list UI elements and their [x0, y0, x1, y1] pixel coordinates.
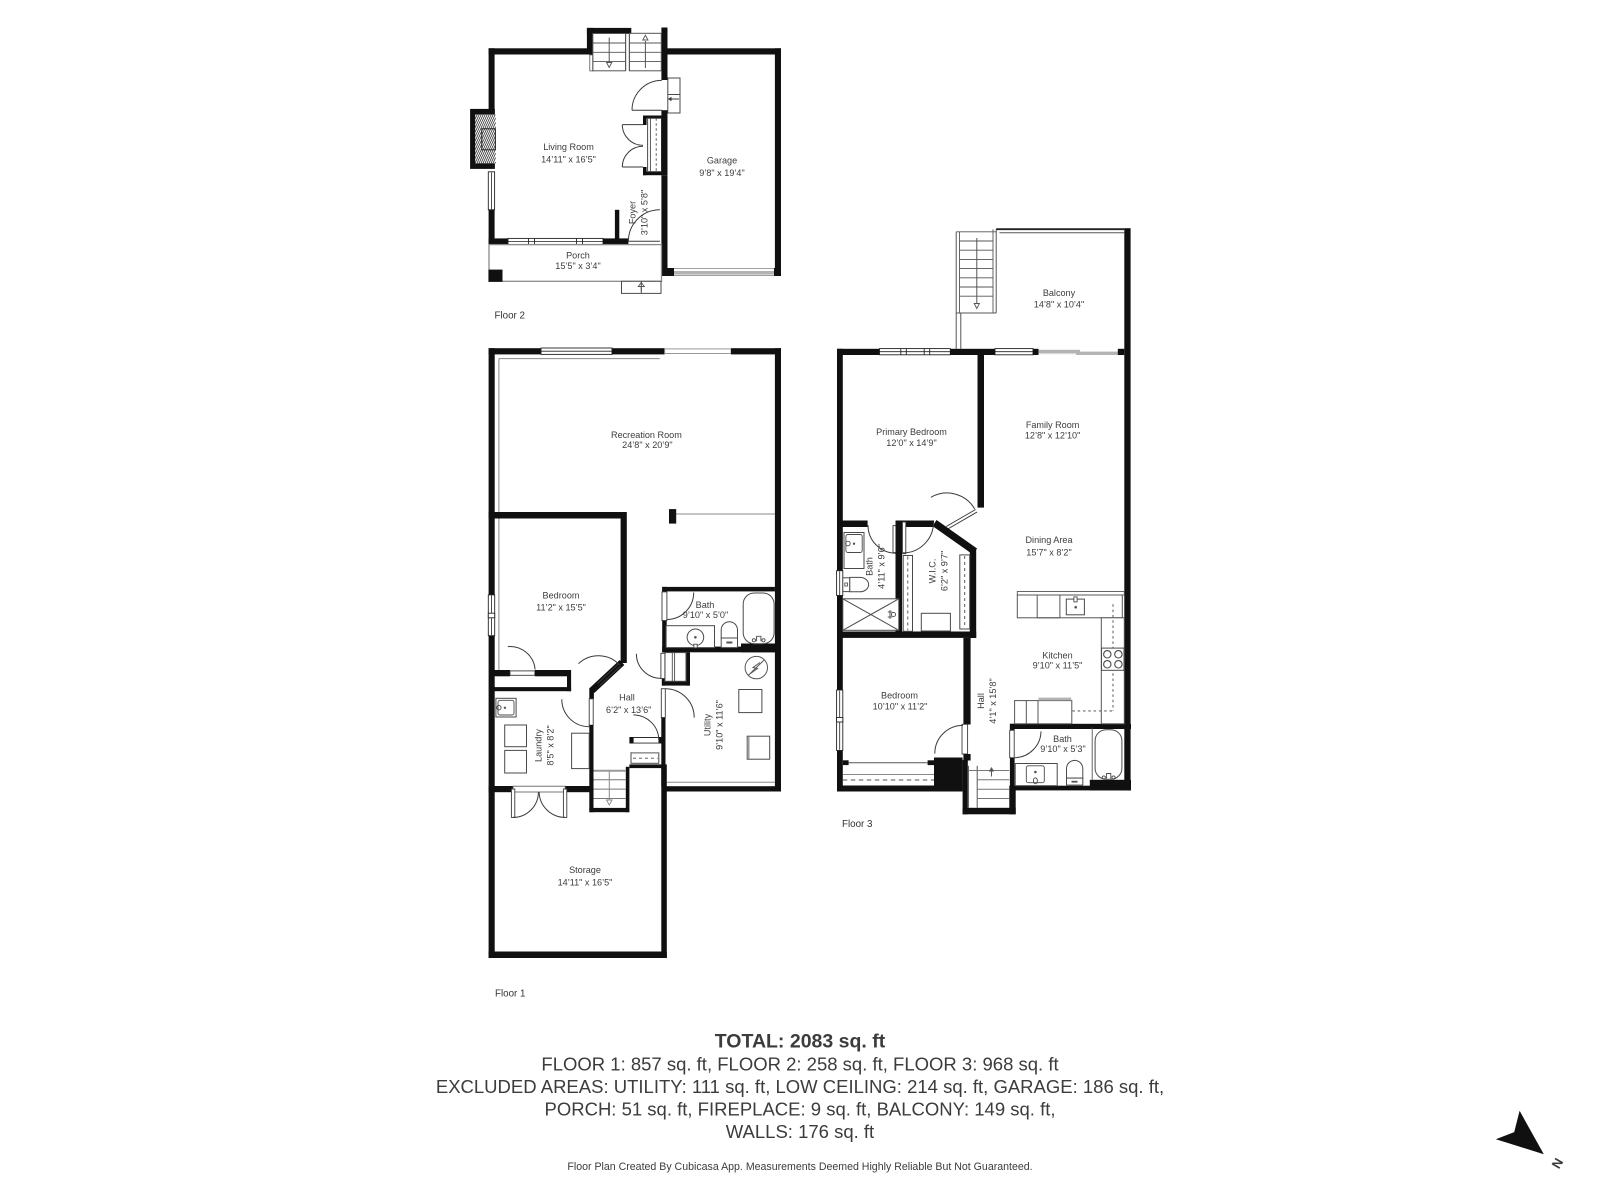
svg-text:6’2" x 13’6": 6’2" x 13’6": [606, 705, 651, 715]
svg-text:PORCH: 51 sq. ft, FIREPLACE: 9: PORCH: 51 sq. ft, FIREPLACE: 9 sq. ft, B…: [545, 1099, 1056, 1120]
svg-text:Floor 3: Floor 3: [842, 819, 873, 830]
svg-text:Family Room: Family Room: [1026, 420, 1080, 430]
svg-text:Recreation Room: Recreation Room: [611, 430, 682, 440]
svg-text:12’8" x 12’10": 12’8" x 12’10": [1025, 430, 1081, 440]
svg-text:Balcony: Balcony: [1043, 288, 1076, 298]
svg-text:Bedroom: Bedroom: [543, 591, 580, 601]
svg-text:TOTAL: 2083 sq. ft: TOTAL: 2083 sq. ft: [715, 1031, 886, 1053]
svg-text:14’8" x 10’4": 14’8" x 10’4": [1034, 300, 1084, 310]
svg-text:Primary Bedroom: Primary Bedroom: [876, 427, 947, 437]
svg-text:6’2" x 9’7": 6’2" x 9’7": [939, 551, 949, 591]
svg-text:Porch: Porch: [566, 251, 590, 261]
svg-text:Bath: Bath: [1053, 734, 1072, 744]
svg-text:10’10" x 11’2": 10’10" x 11’2": [873, 702, 928, 712]
svg-text:15’5" x 3’4": 15’5" x 3’4": [555, 261, 600, 271]
svg-text:Foyer: Foyer: [628, 201, 638, 224]
svg-text:Floor 2: Floor 2: [495, 311, 526, 322]
svg-text:8’5" x 8’2": 8’5" x 8’2": [545, 725, 555, 765]
svg-text:Floor 1: Floor 1: [495, 989, 526, 1000]
svg-text:12’0" x 14’9": 12’0" x 14’9": [886, 438, 936, 448]
svg-text:Storage: Storage: [569, 865, 601, 875]
svg-text:9’10" x 11’5": 9’10" x 11’5": [1033, 661, 1083, 671]
svg-text:W.I.C.: W.I.C.: [928, 559, 938, 584]
svg-text:Hall: Hall: [976, 693, 986, 709]
svg-text:Utility: Utility: [703, 713, 713, 736]
svg-text:9’8" x 19’4": 9’8" x 19’4": [699, 168, 744, 178]
svg-text:24’8" x 20’9": 24’8" x 20’9": [622, 440, 672, 450]
svg-text:14’11" x 16’5": 14’11" x 16’5": [558, 878, 613, 888]
svg-text:Bedroom: Bedroom: [881, 691, 918, 701]
svg-text:FLOOR 1: 857 sq. ft, FLOOR 2:: FLOOR 1: 857 sq. ft, FLOOR 2: 258 sq. ft…: [541, 1054, 1058, 1075]
svg-text:9’10" x 11’6": 9’10" x 11’6": [714, 700, 724, 750]
svg-text:Laundry: Laundry: [534, 729, 544, 762]
svg-text:4’1" x 15’8": 4’1" x 15’8": [988, 678, 998, 723]
svg-text:4’11" x 9’6": 4’11" x 9’6": [876, 544, 886, 589]
svg-text:WALLS: 176 sq. ft: WALLS: 176 sq. ft: [726, 1121, 874, 1142]
svg-text:EXCLUDED AREAS: UTILITY: 111 s: EXCLUDED AREAS: UTILITY: 111 sq. ft, LOW…: [436, 1076, 1164, 1097]
svg-text:15’7" x 8’2": 15’7" x 8’2": [1026, 548, 1071, 558]
svg-text:Floor Plan Created By Cubicasa: Floor Plan Created By Cubicasa App. Meas…: [567, 1161, 1032, 1173]
svg-text:Hall: Hall: [619, 693, 635, 703]
svg-text:Kitchen: Kitchen: [1042, 651, 1072, 661]
svg-text:Bath: Bath: [865, 557, 875, 576]
svg-text:Dining Area: Dining Area: [1025, 535, 1073, 545]
svg-text:9’10" x 5’0": 9’10" x 5’0": [683, 610, 728, 620]
svg-text:Living Room: Living Room: [543, 142, 594, 152]
svg-text:3’10" x 5’8": 3’10" x 5’8": [639, 190, 649, 235]
svg-text:9’10" x 5’3": 9’10" x 5’3": [1040, 744, 1085, 754]
svg-text:Garage: Garage: [707, 156, 737, 166]
svg-text:Bath: Bath: [696, 600, 715, 610]
svg-text:11’2" x 15’5": 11’2" x 15’5": [536, 603, 586, 613]
svg-text:14’11" x 16’5": 14’11" x 16’5": [541, 154, 596, 164]
